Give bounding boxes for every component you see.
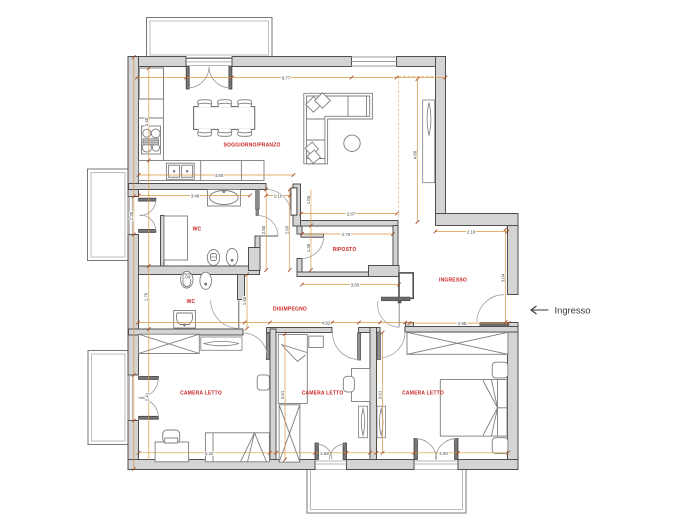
svg-text:2.41: 2.41 bbox=[145, 392, 150, 401]
svg-text:CAMERA LETTO: CAMERA LETTO bbox=[402, 391, 444, 397]
svg-text:SOGGIORNO/PRANZO: SOGGIORNO/PRANZO bbox=[223, 143, 280, 149]
svg-text:CAMERA LETTO: CAMERA LETTO bbox=[180, 391, 222, 397]
svg-text:2.68: 2.68 bbox=[320, 451, 329, 456]
svg-text:4.68: 4.68 bbox=[413, 150, 418, 159]
svg-text:4.00: 4.00 bbox=[439, 451, 448, 456]
svg-text:2.95: 2.95 bbox=[458, 321, 467, 326]
svg-text:4.92: 4.92 bbox=[322, 321, 331, 326]
svg-text:CAMERA LETTO: CAMERA LETTO bbox=[302, 391, 344, 397]
svg-text:2.04: 2.04 bbox=[182, 275, 191, 280]
svg-text:4.32: 4.32 bbox=[205, 451, 214, 456]
svg-text:2.40: 2.40 bbox=[144, 117, 149, 126]
svg-text:3.00: 3.00 bbox=[351, 283, 360, 288]
svg-text:2.60: 2.60 bbox=[285, 225, 290, 234]
svg-text:4.80: 4.80 bbox=[215, 173, 224, 178]
svg-text:9.77: 9.77 bbox=[282, 76, 291, 81]
svg-text:2.18: 2.18 bbox=[467, 230, 476, 235]
svg-text:1.70: 1.70 bbox=[144, 292, 149, 301]
svg-text:3.04: 3.04 bbox=[501, 273, 506, 282]
svg-text:DISIMPEGNO: DISIMPEGNO bbox=[273, 307, 307, 313]
svg-text:2.75: 2.75 bbox=[342, 232, 351, 237]
svg-text:RIPOSTO: RIPOSTO bbox=[333, 247, 357, 253]
svg-text:Ingresso: Ingresso bbox=[555, 305, 591, 316]
svg-text:3.61: 3.61 bbox=[378, 390, 383, 399]
svg-text:WC: WC bbox=[193, 227, 202, 233]
svg-text:2.87: 2.87 bbox=[347, 212, 356, 217]
svg-text:3.61: 3.61 bbox=[280, 390, 285, 399]
svg-text:3.48: 3.48 bbox=[191, 194, 200, 199]
svg-text:1.38: 1.38 bbox=[306, 243, 311, 252]
svg-text:1.35: 1.35 bbox=[129, 211, 134, 220]
svg-text:INGRESSO: INGRESSO bbox=[439, 278, 467, 284]
svg-text:1.06: 1.06 bbox=[306, 195, 311, 204]
svg-text:WC: WC bbox=[187, 299, 196, 305]
svg-text:1.50: 1.50 bbox=[242, 296, 247, 305]
svg-text:1.10: 1.10 bbox=[274, 194, 283, 199]
svg-text:2.60: 2.60 bbox=[261, 225, 266, 234]
